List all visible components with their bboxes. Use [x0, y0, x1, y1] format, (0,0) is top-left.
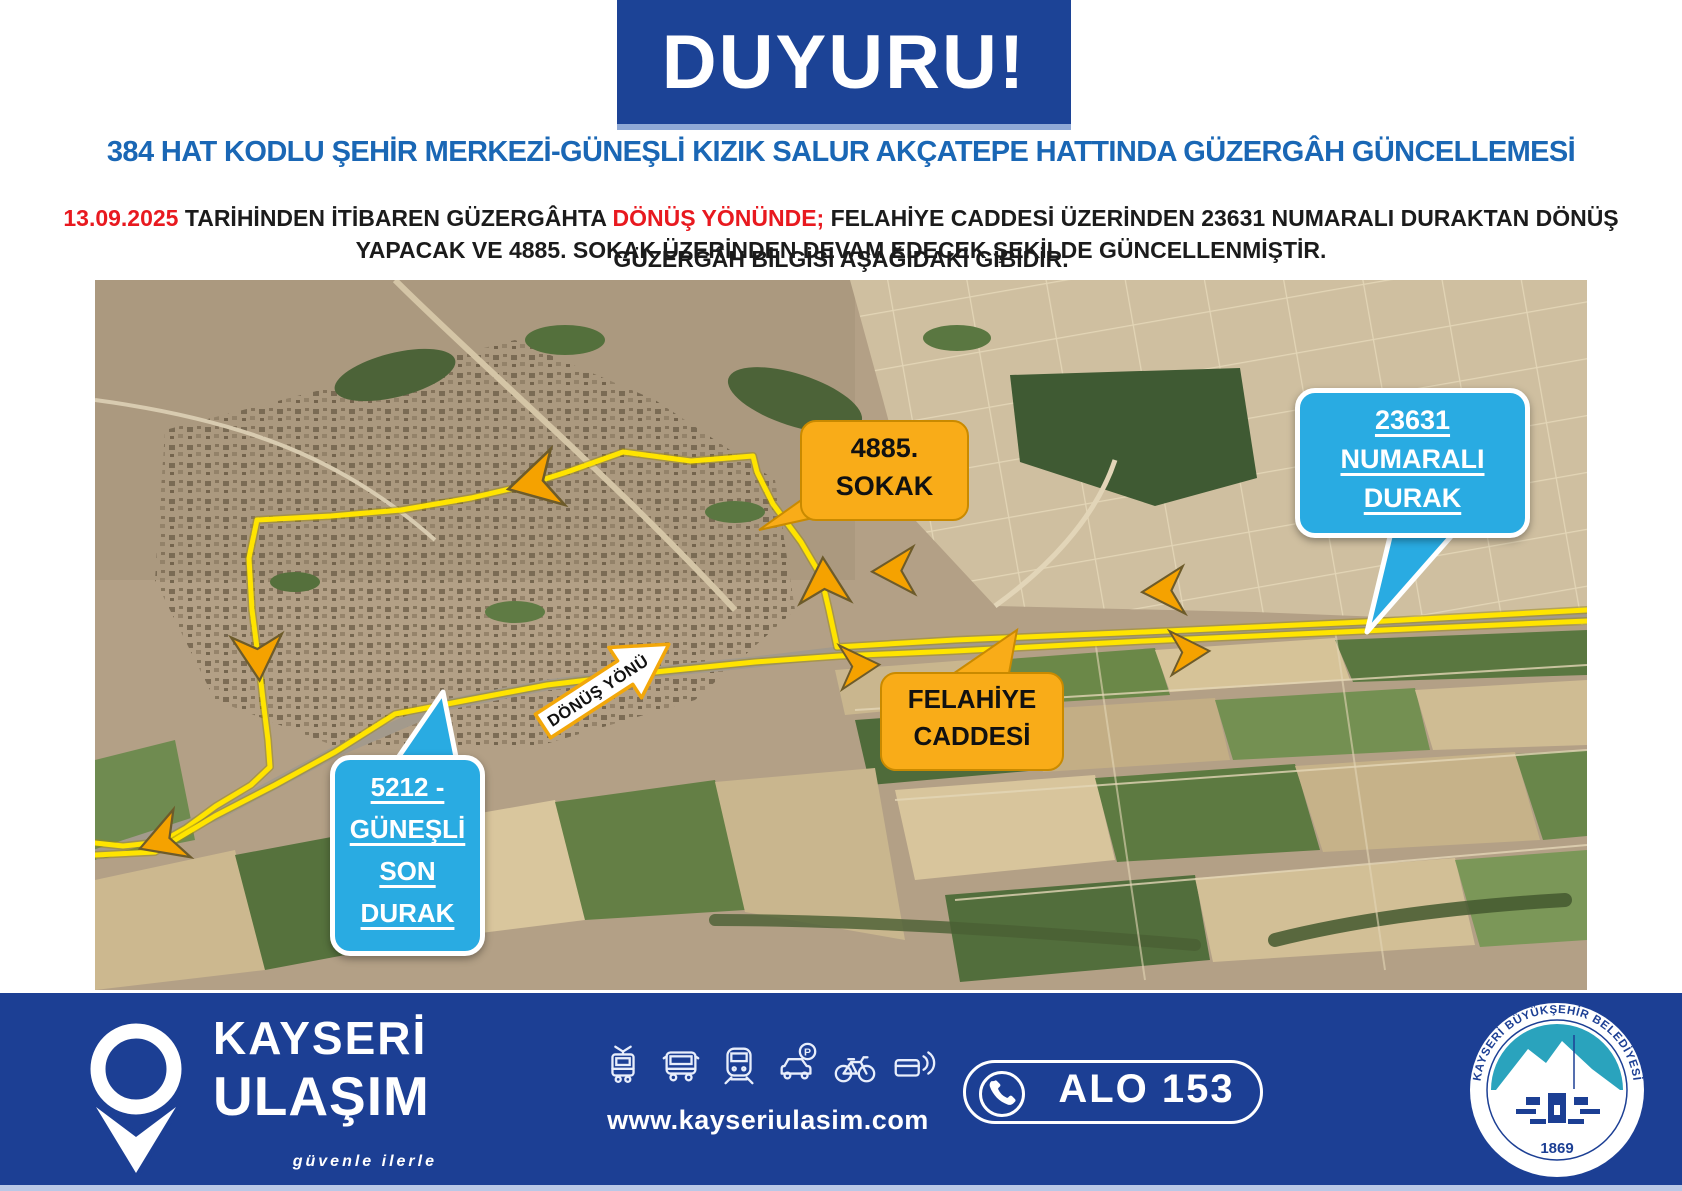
bus-icon	[658, 1041, 704, 1087]
direction-highlight: DÖNÜŞ YÖNÜNDE;	[613, 205, 825, 231]
page-title: 384 HAT KODLU ŞEHİR MERKEZİ-GÜNEŞLİ KIZI…	[0, 136, 1682, 169]
kayseri-ulasim-logo	[58, 1007, 218, 1187]
phone-icon	[979, 1071, 1025, 1117]
pin-tip	[96, 1107, 176, 1173]
tram-icon	[600, 1041, 646, 1087]
brand-slogan: güvenle ilerle	[215, 1153, 437, 1171]
banner-text: DUYURU!	[662, 19, 1026, 106]
seal-year: 1869	[1540, 1140, 1573, 1157]
callout-durak-23631: 23631 NUMARALI DURAK	[1295, 388, 1530, 538]
municipality-seal: KAYSERİ BÜYÜKŞEHİR BELEDİYESİ 1869	[1468, 1001, 1646, 1179]
transport-icons: P	[600, 1041, 936, 1087]
pin-ring	[98, 1031, 174, 1107]
phone-number: ALO 153	[1044, 1067, 1249, 1112]
callout-gunesli-son-durak: 5212 - GÜNEŞLİ SON DURAK	[330, 755, 485, 956]
svg-text:P: P	[804, 1046, 811, 1058]
callout-felahiye-caddesi: FELAHİYE CADDESİ	[880, 672, 1064, 771]
bike-icon	[832, 1041, 878, 1087]
satellite-map-canvas: DÖNÜŞ YÖNÜ	[95, 280, 1587, 990]
announcement-poster: DUYURU! 384 HAT KODLU ŞEHİR MERKEZİ-GÜNE…	[0, 0, 1682, 1191]
contactless-card-icon	[890, 1041, 936, 1087]
date-text: 13.09.2025	[63, 205, 178, 231]
alo-153-badge: ALO 153	[963, 1060, 1263, 1124]
route-info-subtitle: GÜZERGÂH BİLGİSİ AŞAĞIDAKİ GİBİDİR.	[0, 246, 1682, 273]
brand-wordmark: KAYSERİ ULAŞIM	[213, 1015, 430, 1124]
footer-bar: KAYSERİ ULAŞIM güvenle ilerle	[0, 993, 1682, 1191]
car-parking-icon: P	[774, 1041, 820, 1087]
website-url: www.kayseriulasim.com	[590, 1105, 946, 1136]
metro-icon	[716, 1041, 762, 1087]
banner-duyuru: DUYURU!	[617, 0, 1071, 130]
route-map: DÖNÜŞ YÖNÜ 4885. SOKAK 23631 NUMARALI DU…	[95, 280, 1587, 990]
callout-4885-sokak: 4885. SOKAK	[800, 420, 969, 521]
footer-bottom-strip	[0, 1185, 1682, 1191]
